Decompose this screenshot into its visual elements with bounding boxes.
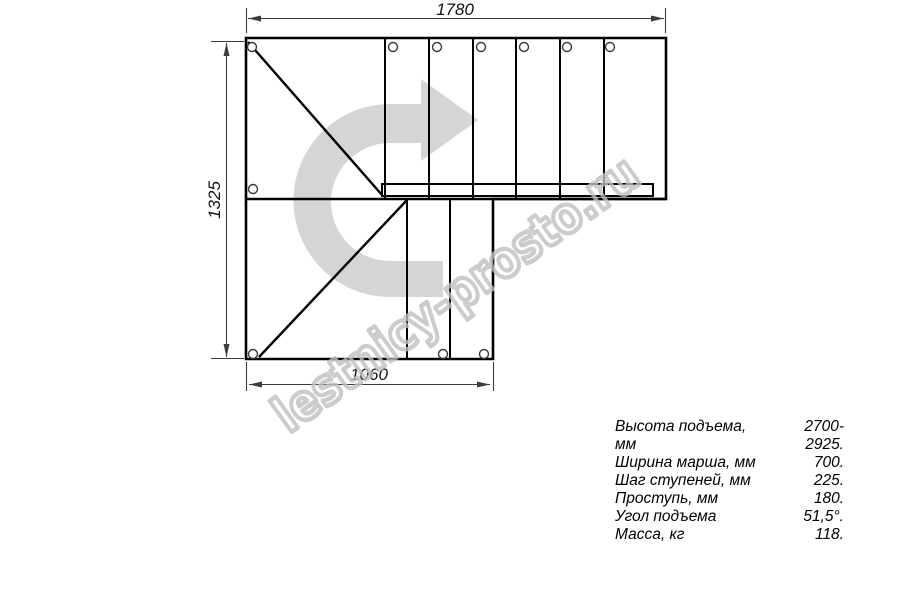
spec-label: Проступь, мм: [615, 490, 718, 508]
spec-row: Шаг ступеней, мм 225.: [615, 472, 844, 490]
screw-hole: [249, 185, 258, 194]
spec-row: Ширина марша, мм 700.: [615, 454, 844, 472]
spec-label: Высота подъема, мм: [615, 418, 768, 454]
dim-arrowhead: [651, 16, 664, 22]
spec-table: Высота подъема, мм 2700-2925. Ширина мар…: [615, 418, 844, 544]
screw-hole: [480, 350, 489, 359]
spec-label: Шаг ступеней, мм: [615, 472, 751, 490]
spec-label: Ширина марша, мм: [615, 454, 756, 472]
spec-label: Угол подъема: [615, 508, 716, 526]
spec-value: 2700-2925.: [768, 418, 844, 454]
dim-left-label: 1325: [205, 181, 224, 219]
spec-value: 700.: [814, 454, 844, 472]
screw-hole: [439, 350, 448, 359]
dim-arrowhead: [477, 382, 490, 388]
screw-hole: [477, 43, 486, 52]
screw-hole: [520, 43, 529, 52]
spec-row: Угол подъема 51,5°.: [615, 508, 844, 526]
screw-hole: [248, 43, 257, 52]
screw-hole: [433, 43, 442, 52]
blueprint-canvas: 1780 1325 1060 lestnicy-prosto.ru Высота…: [0, 0, 900, 600]
spec-value: 118.: [815, 526, 844, 544]
screw-hole: [389, 43, 398, 52]
dim-arrowhead: [249, 382, 262, 388]
screw-hole: [563, 43, 572, 52]
dim-arrowhead: [248, 16, 261, 22]
spec-value: 51,5°.: [803, 508, 844, 526]
screw-hole: [249, 350, 258, 359]
dim-arrowhead: [224, 43, 230, 56]
dim-arrowhead: [224, 344, 230, 357]
spec-row: Высота подъема, мм 2700-2925.: [615, 418, 844, 454]
screw-hole: [606, 43, 615, 52]
spec-value: 180.: [814, 490, 844, 508]
dim-top-label: 1780: [436, 0, 474, 19]
spec-row: Масса, кг 118.: [615, 526, 844, 544]
spec-label: Масса, кг: [615, 526, 684, 544]
spec-value: 225.: [814, 472, 844, 490]
spec-row: Проступь, мм 180.: [615, 490, 844, 508]
